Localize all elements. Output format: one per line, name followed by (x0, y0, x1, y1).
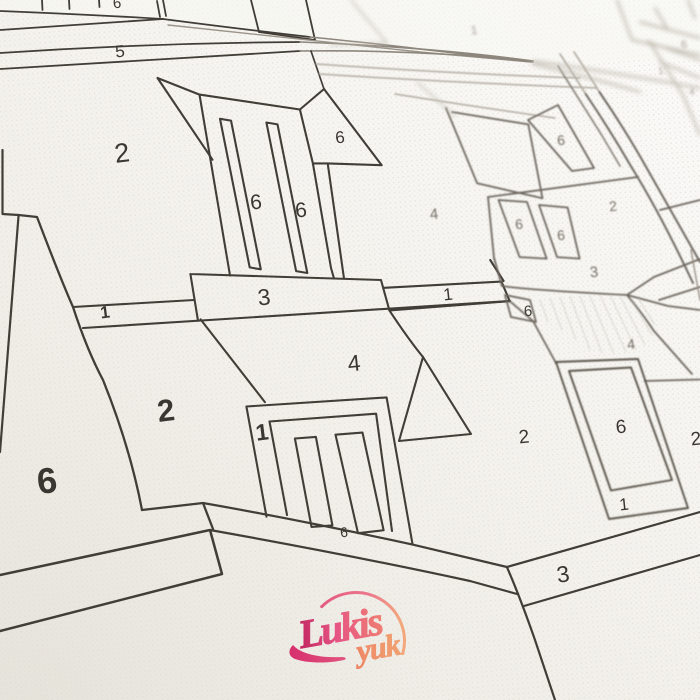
svg-text:2: 2 (518, 427, 531, 449)
svg-text:6: 6 (523, 303, 533, 321)
svg-text:1: 1 (442, 285, 453, 305)
svg-text:6: 6 (334, 128, 345, 148)
svg-text:6: 6 (249, 190, 263, 214)
svg-text:5: 5 (114, 42, 125, 62)
svg-text:6: 6 (294, 198, 308, 222)
svg-text:6: 6 (680, 39, 687, 52)
svg-text:4: 4 (429, 206, 439, 224)
svg-text:2: 2 (690, 429, 700, 451)
svg-text:1: 1 (618, 495, 629, 515)
svg-text:3: 3 (256, 283, 271, 310)
svg-text:6: 6 (112, 0, 122, 12)
svg-text:6: 6 (615, 417, 628, 439)
svg-text:3: 3 (589, 264, 599, 282)
